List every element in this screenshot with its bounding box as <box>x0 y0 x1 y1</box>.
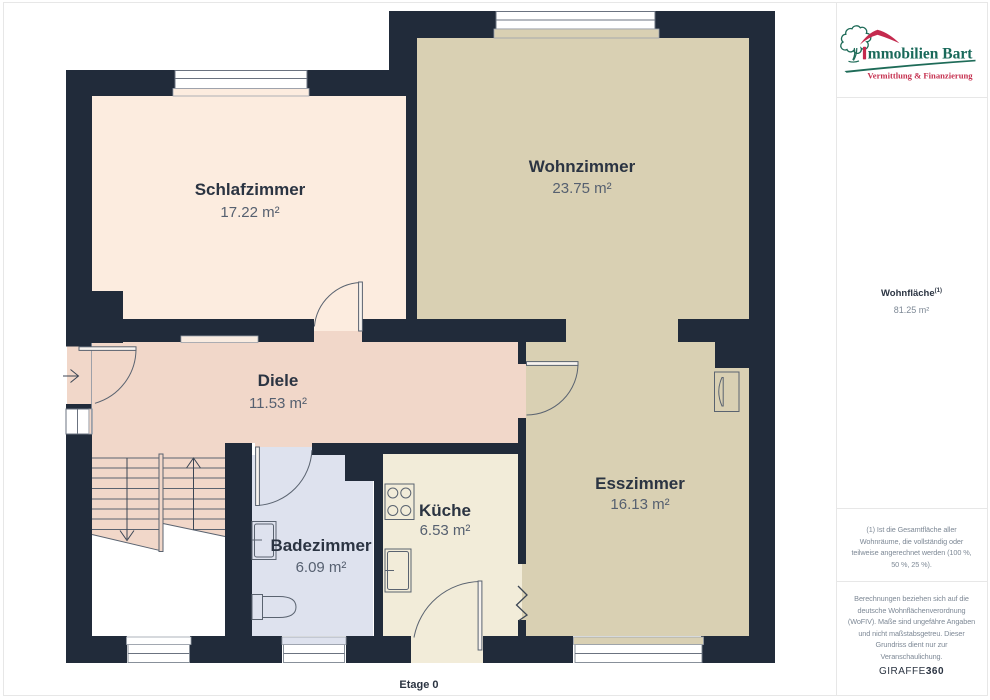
svg-text:17.22 m²: 17.22 m² <box>220 204 279 221</box>
svg-text:Vermittlung & Finanzierung: Vermittlung & Finanzierung <box>867 71 973 81</box>
svg-text:Etage 0: Etage 0 <box>399 679 438 691</box>
svg-text:Diele: Diele <box>258 371 299 390</box>
svg-text:6.09 m²: 6.09 m² <box>296 559 347 576</box>
svg-text:Wohnzimmer: Wohnzimmer <box>529 157 636 176</box>
svg-text:Badezimmer: Badezimmer <box>270 536 371 555</box>
svg-text:11.53 m²: 11.53 m² <box>249 395 307 412</box>
svg-text:6.53 m²: 6.53 m² <box>420 522 471 539</box>
svg-text:23.75 m²: 23.75 m² <box>552 180 611 197</box>
svg-text:16.13 m²: 16.13 m² <box>610 496 669 513</box>
svg-text:Esszimmer: Esszimmer <box>595 474 685 493</box>
svg-text:mmobilien Bart: mmobilien Bart <box>868 46 973 63</box>
svg-text:Küche: Küche <box>419 501 471 520</box>
svg-text:Schlafzimmer: Schlafzimmer <box>195 180 306 199</box>
